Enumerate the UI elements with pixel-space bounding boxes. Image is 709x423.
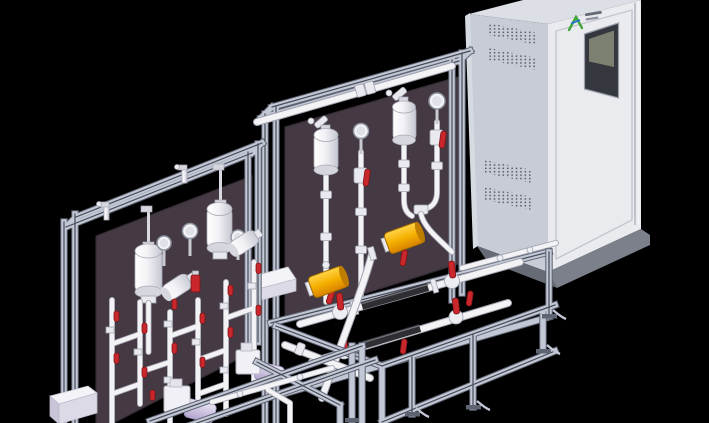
cad-render-stage bbox=[0, 0, 709, 423]
hmi-panel bbox=[585, 23, 619, 98]
red-valve-lever bbox=[336, 293, 344, 311]
red-valve-lever bbox=[466, 291, 474, 307]
red-device bbox=[191, 271, 200, 292]
base-slab bbox=[50, 386, 97, 423]
equipment-render bbox=[0, 0, 709, 423]
red-valve-lever bbox=[452, 298, 460, 315]
red-valve-lever bbox=[400, 339, 408, 355]
black-pipe-section bbox=[360, 328, 420, 346]
red-valve-lever bbox=[448, 261, 456, 279]
